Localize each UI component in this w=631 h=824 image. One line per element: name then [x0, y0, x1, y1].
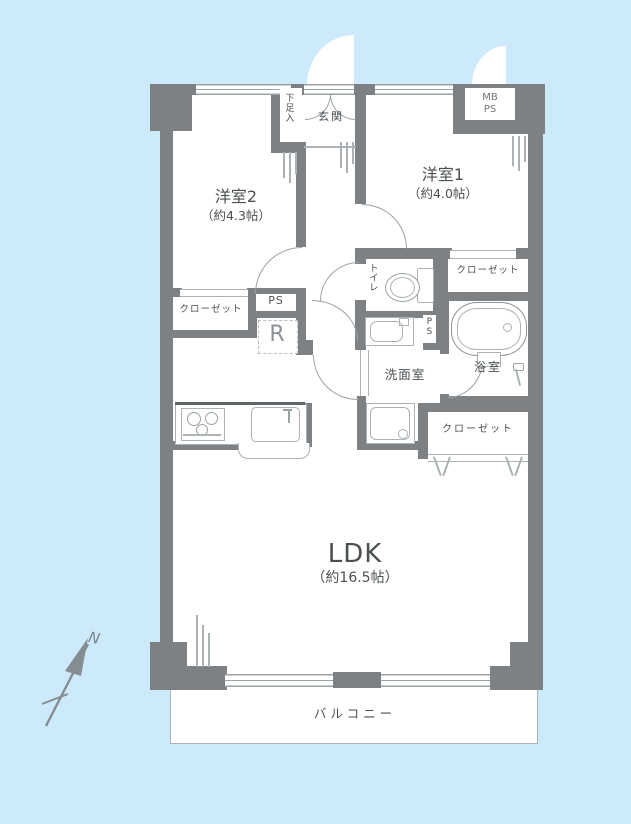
- sliding-window: [225, 674, 333, 687]
- wall-pillar: [150, 642, 187, 690]
- balcony-label: バルコニー: [270, 707, 440, 721]
- wall-segment: [440, 292, 530, 301]
- bathroom-label: 浴室: [460, 361, 516, 375]
- room-label-ldk: LDK: [295, 540, 415, 570]
- entrance-step-line: [304, 146, 356, 148]
- wall-pillar: [187, 666, 227, 690]
- meter-box-line2: PS: [484, 104, 496, 115]
- toilet-label: トイレ: [366, 263, 377, 292]
- room-size-ldk: （約16.5帖）: [295, 570, 415, 586]
- wall-segment: [160, 330, 257, 338]
- toilet-seat-icon: [390, 277, 415, 298]
- wall-segment: [296, 142, 306, 247]
- wall-segment: [355, 94, 366, 204]
- wall-segment: [528, 120, 543, 670]
- faucet-icon: [288, 410, 290, 423]
- room-size-west2: （約4.3帖）: [176, 209, 296, 223]
- kitchen-counter-edge: [175, 402, 305, 405]
- room-label-west1: 洋室1: [383, 166, 503, 184]
- pipe-space-main-label: PS: [256, 295, 296, 308]
- entrance-door-swing-icon: [307, 35, 354, 85]
- counter-overhang: [238, 443, 310, 459]
- hatch-line: [196, 615, 198, 667]
- hatch-line: [352, 142, 354, 164]
- closet-ldk-label: クローゼット: [428, 424, 528, 436]
- entrance-label: 玄関: [306, 111, 356, 124]
- wall-segment: [516, 248, 530, 259]
- faucet-icon: [283, 409, 292, 411]
- floor-plan: 洋室2 （約4.3帖） 洋室1 （約4.0帖） LDK （約16.5帖） 玄関 …: [0, 0, 631, 824]
- stove-grill-line: [183, 434, 221, 436]
- closet-folding-door: [428, 454, 528, 462]
- meter-box-door-swing-icon: [472, 46, 506, 85]
- hatch-line: [340, 142, 342, 168]
- closet-west2-label: クローゼット: [172, 305, 250, 316]
- washer-drain-icon: [398, 429, 408, 439]
- pipe-space-bath-label: PS: [424, 317, 434, 337]
- window: [196, 84, 291, 95]
- hatch-line: [524, 136, 526, 162]
- wall-segment: [440, 292, 449, 354]
- window: [375, 84, 453, 95]
- hatch-line: [295, 152, 297, 174]
- stove-burner-icon: [205, 412, 218, 425]
- wall-segment: [418, 403, 530, 412]
- meter-box-line1: MB: [482, 92, 498, 103]
- wall-segment: [160, 288, 182, 297]
- hatch-line: [289, 152, 291, 183]
- wall-segment: [418, 403, 428, 459]
- closet-sliding-door: [180, 289, 248, 297]
- meter-box-label: MB PS: [465, 92, 515, 115]
- hatch-line: [208, 633, 210, 667]
- closet-sliding-door: [450, 250, 516, 259]
- refrigerator-label: R: [258, 322, 296, 347]
- sliding-window: [381, 674, 490, 687]
- washroom-label: 洗面室: [366, 368, 444, 382]
- wall-segment: [296, 340, 313, 355]
- wall-segment: [160, 84, 173, 660]
- bathtub-drain-icon: [503, 323, 512, 332]
- hatch-line: [202, 625, 204, 667]
- closet-west1-label: クローゼット: [447, 266, 529, 277]
- wall-segment: [333, 672, 381, 688]
- kitchen-sink-icon: [251, 407, 300, 442]
- hatch-line: [283, 152, 285, 178]
- room-size-west1: （約4.0帖）: [383, 187, 503, 201]
- hatch-line: [518, 136, 520, 171]
- hatch-line: [512, 136, 514, 166]
- room-label-west2: 洋室2: [176, 188, 296, 206]
- hatch-line: [346, 142, 348, 173]
- wall-segment: [253, 311, 306, 318]
- wall-segment: [453, 120, 545, 134]
- vanity-tap-icon: [399, 318, 409, 326]
- shoe-cabinet-label: 下足入: [283, 93, 293, 123]
